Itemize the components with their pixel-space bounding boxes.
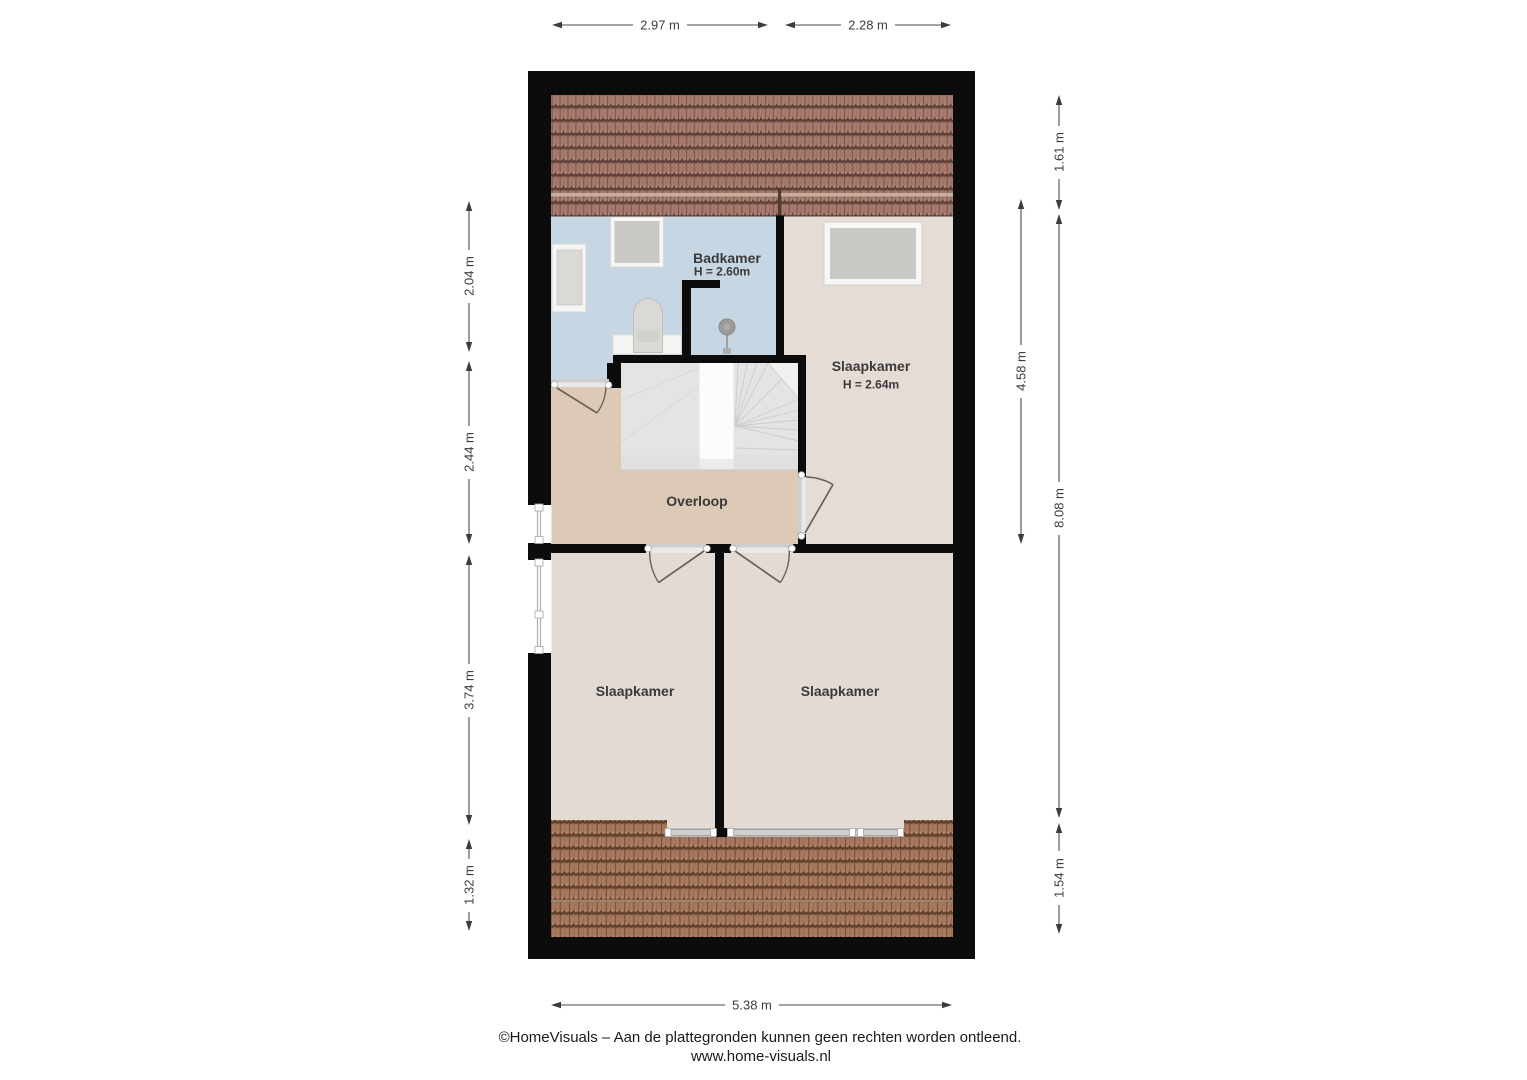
svg-text:5.38 m: 5.38 m [732, 998, 772, 1013]
svg-text:4.58 m: 4.58 m [1014, 351, 1029, 391]
svg-text:Overloop: Overloop [666, 493, 727, 509]
svg-text:www.home-visuals.nl: www.home-visuals.nl [690, 1048, 831, 1065]
svg-text:Slaapkamer: Slaapkamer [801, 683, 880, 699]
svg-text:1.32 m: 1.32 m [462, 865, 477, 905]
svg-text:2.04 m: 2.04 m [462, 256, 477, 296]
svg-text:3.74 m: 3.74 m [462, 670, 477, 710]
svg-text:2.97 m: 2.97 m [640, 18, 680, 33]
svg-text:Slaapkamer: Slaapkamer [832, 358, 911, 374]
svg-text:8.08 m: 8.08 m [1052, 488, 1067, 528]
svg-text:H = 2.60m: H = 2.60m [694, 265, 750, 279]
svg-text:2.28 m: 2.28 m [848, 18, 888, 33]
svg-text:1.61 m: 1.61 m [1052, 132, 1067, 172]
svg-text:H = 2.64m: H = 2.64m [843, 378, 899, 392]
svg-text:2.44 m: 2.44 m [462, 432, 477, 472]
svg-text:1.54 m: 1.54 m [1052, 858, 1067, 898]
svg-text:©HomeVisuals – Aan de plattegr: ©HomeVisuals – Aan de plattegronden kunn… [499, 1029, 1022, 1046]
svg-text:Slaapkamer: Slaapkamer [596, 683, 675, 699]
